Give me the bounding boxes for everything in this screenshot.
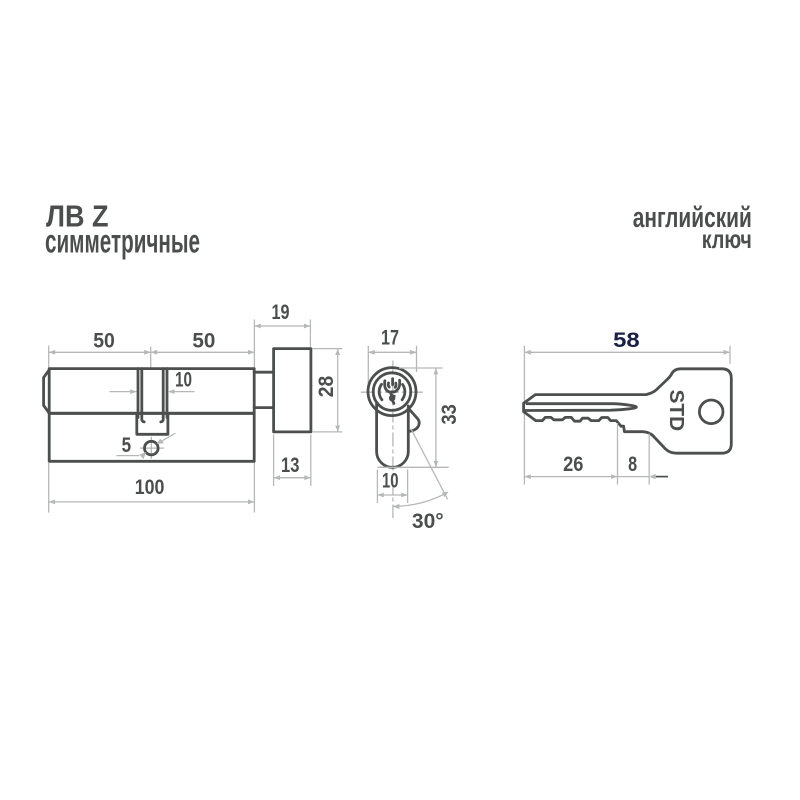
svg-text:10: 10 [175, 369, 192, 392]
svg-text:100: 100 [135, 476, 165, 499]
svg-text:33: 33 [438, 404, 461, 424]
svg-text:26: 26 [563, 453, 583, 476]
svg-text:10: 10 [382, 470, 399, 493]
svg-text:13: 13 [281, 454, 299, 477]
svg-text:50: 50 [93, 329, 115, 352]
svg-text:58: 58 [613, 329, 640, 352]
svg-text:19: 19 [272, 301, 290, 324]
svg-text:STD: STD [665, 390, 687, 432]
svg-text:30°: 30° [412, 510, 444, 533]
svg-text:8: 8 [628, 453, 637, 476]
svg-text:17: 17 [381, 327, 399, 350]
svg-text:5: 5 [122, 434, 132, 457]
svg-text:ключ: ключ [702, 224, 752, 254]
svg-text:50: 50 [192, 329, 215, 352]
svg-text:28: 28 [315, 376, 338, 398]
svg-text:симметричные: симметричные [45, 223, 200, 260]
